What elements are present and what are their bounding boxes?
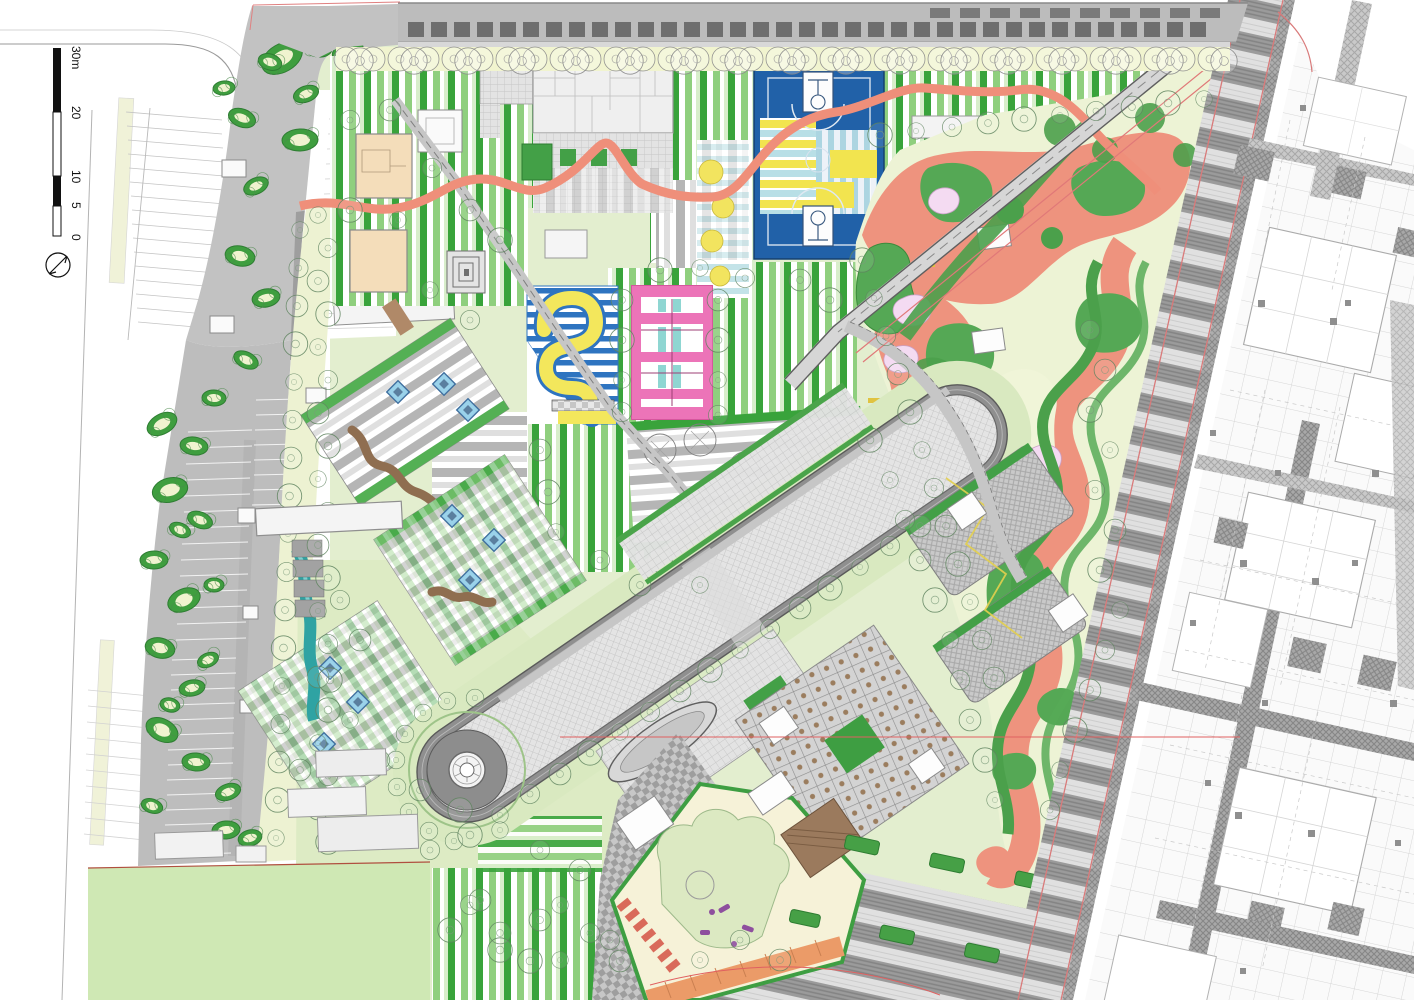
svg-text:0: 0: [69, 234, 83, 241]
svg-text:20: 20: [69, 106, 83, 120]
svg-text:10: 10: [69, 170, 83, 184]
svg-text:5: 5: [69, 202, 83, 209]
svg-text:30m: 30m: [69, 46, 83, 69]
